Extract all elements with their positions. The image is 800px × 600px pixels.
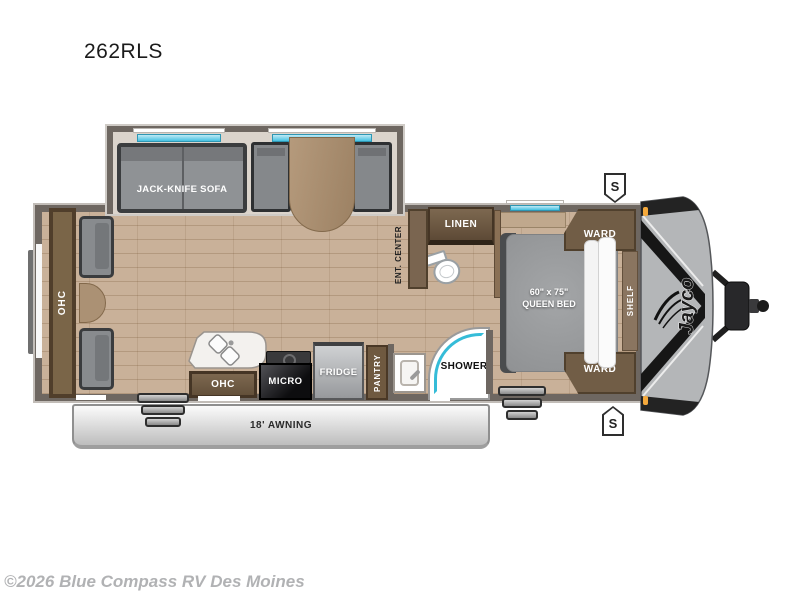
entertainment-center-cabinet (408, 209, 428, 289)
marker-light-bottom-icon (643, 396, 648, 405)
jayco-logo-text: Jayco (676, 278, 698, 335)
shower-label: SHOWER (430, 361, 488, 372)
floorplan-page: 262RLS JACK-KNIFE SOFA OHC OHC MICRO FRI… (0, 0, 800, 600)
kitchen-ohc-cabinet: OHC (189, 371, 257, 398)
front-cap: Jayco (633, 194, 773, 418)
step (141, 405, 185, 415)
bathroom-sink (393, 353, 426, 393)
rear-wall-window (36, 244, 42, 358)
speaker-badge-bottom: S (602, 406, 624, 436)
shelf-label: SHELF (626, 285, 635, 316)
shower-bedroom-wall (486, 330, 493, 394)
pantry-cabinet: PANTRY (366, 345, 388, 400)
slide-window-sill-left (133, 128, 225, 133)
page-title: 262RLS (84, 40, 163, 64)
step (506, 410, 538, 420)
dinette-bench-left (251, 142, 291, 212)
bottom-window-3 (430, 396, 450, 401)
entertainment-center-label: ENT. CENTER (390, 212, 406, 297)
jack-knife-sofa: JACK-KNIFE SOFA (117, 143, 247, 213)
dinette-bench-right (352, 142, 392, 212)
rear-ohc-cabinet: OHC (49, 208, 76, 398)
step (137, 393, 189, 403)
pantry-label: PANTRY (373, 354, 382, 392)
theater-seat-top (79, 216, 114, 278)
rear-ohc-label: OHC (57, 290, 68, 315)
speaker-badge-top: S (604, 173, 626, 203)
microwave: MICRO (259, 363, 312, 400)
step (498, 386, 546, 396)
bed-size-label: 60" x 75" QUEEN BED (506, 286, 592, 310)
entry-steps-bedroom (498, 386, 546, 422)
bedroom-top-cabinet (500, 212, 566, 228)
sofa-label: JACK-KNIFE SOFA (137, 184, 228, 195)
shelf-cabinet: SHELF (622, 251, 638, 351)
linen-label: LINEN (445, 219, 478, 230)
awning: 18' AWNING (72, 404, 490, 449)
slide-window-sill-right (268, 128, 376, 133)
slide-window-left (137, 134, 221, 142)
marker-light-top-icon (643, 207, 648, 216)
dinette-table (289, 137, 355, 232)
refrigerator: FRIDGE (313, 342, 364, 400)
pillow-right (598, 237, 616, 368)
theater-seat-bottom (79, 328, 114, 390)
micro-label: MICRO (268, 376, 302, 387)
kitchen-ohc-label: OHC (211, 379, 235, 390)
fridge-label: FRIDGE (320, 367, 358, 378)
bottom-window-2 (198, 396, 240, 401)
entry-steps-main (137, 393, 189, 429)
bottom-window-1 (76, 395, 106, 400)
kitchen-sink-counter (188, 331, 268, 371)
copyright-text: ©2026 Blue Compass RV Des Moines (4, 572, 305, 592)
step (502, 398, 542, 408)
awning-label: 18' AWNING (250, 420, 312, 431)
bedroom-window (510, 205, 560, 211)
hitch-coupler-icon (725, 282, 749, 330)
rear-bumper (28, 250, 35, 354)
linen-cabinet: LINEN (428, 207, 494, 245)
hitch-ball-icon (757, 300, 769, 312)
step (145, 417, 181, 427)
bedroom-window-sill (506, 200, 564, 204)
